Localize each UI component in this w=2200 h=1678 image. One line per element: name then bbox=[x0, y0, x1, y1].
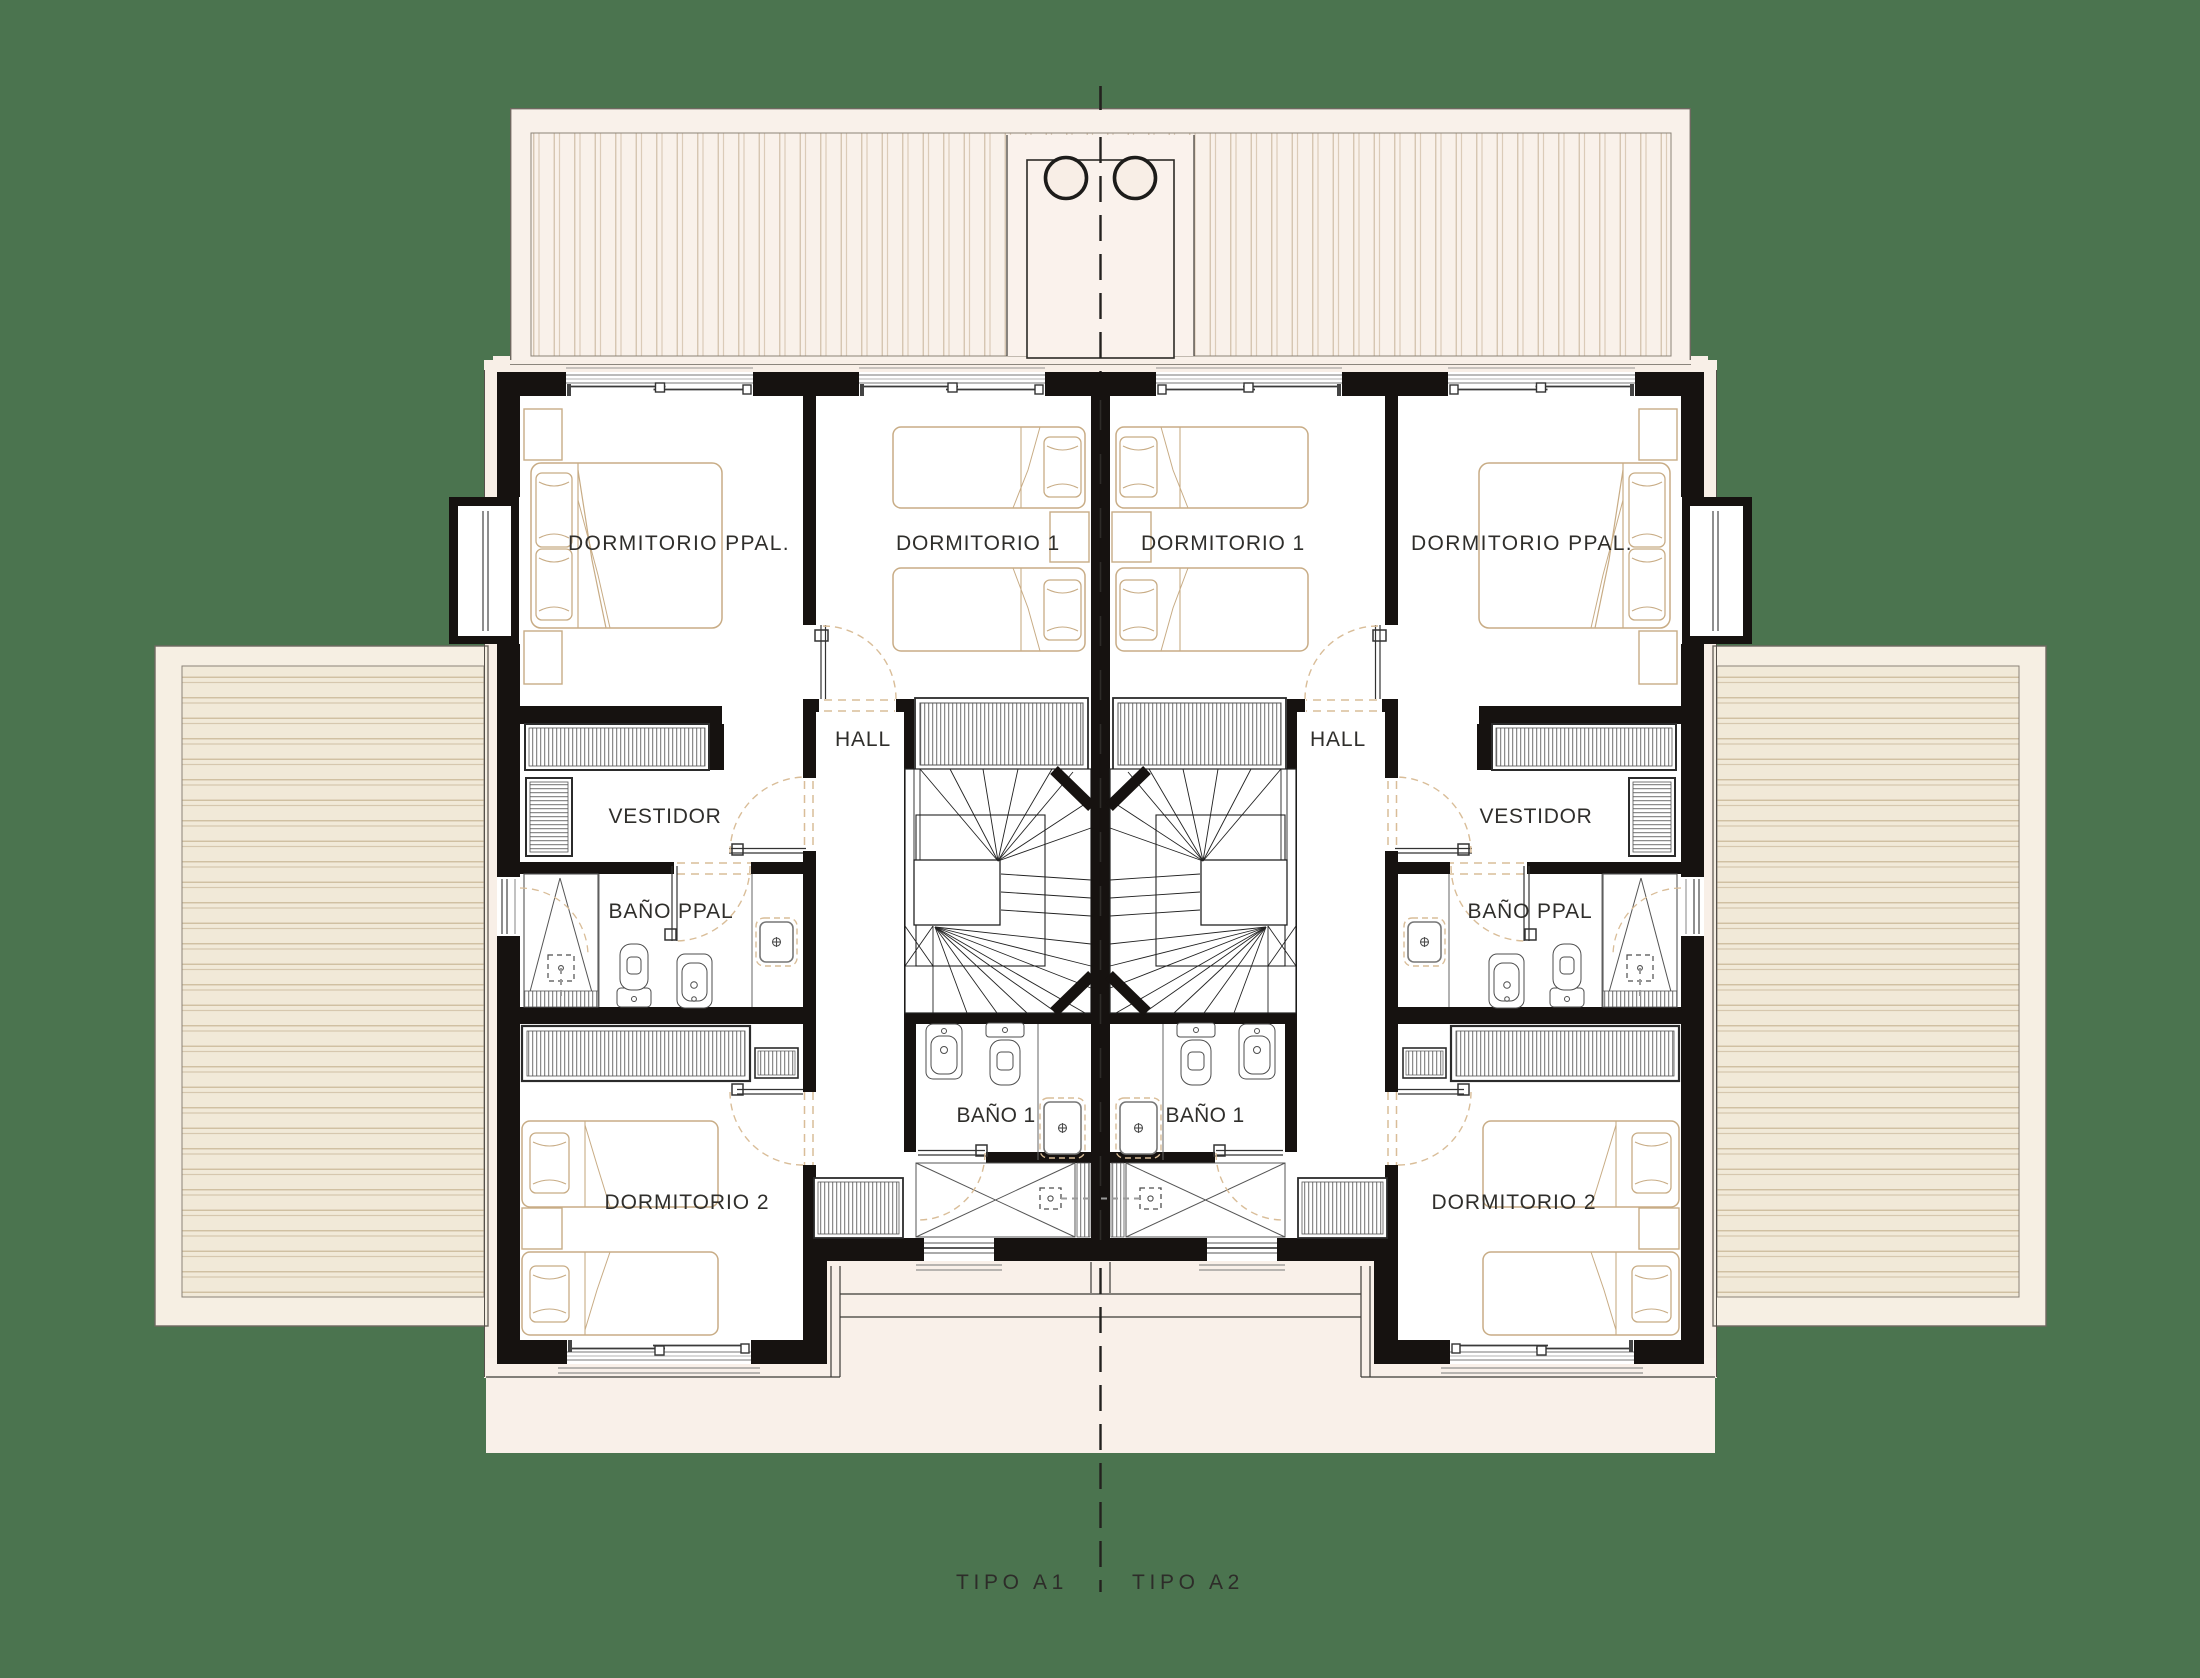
svg-text:VESTIDOR: VESTIDOR bbox=[608, 805, 721, 828]
svg-text:BAÑO PPAL: BAÑO PPAL bbox=[608, 899, 733, 923]
svg-text:DORMITORIO 1: DORMITORIO 1 bbox=[1141, 532, 1305, 555]
svg-text:BAÑO 1: BAÑO 1 bbox=[956, 1103, 1035, 1127]
svg-text:VESTIDOR: VESTIDOR bbox=[1479, 805, 1592, 828]
svg-text:TIPO A2: TIPO A2 bbox=[1132, 1571, 1244, 1594]
svg-text:DORMITORIO PPAL.: DORMITORIO PPAL. bbox=[1411, 532, 1633, 555]
svg-text:HALL: HALL bbox=[835, 728, 891, 751]
svg-text:DORMITORIO 2: DORMITORIO 2 bbox=[604, 1191, 769, 1214]
svg-text:BAÑO PPAL: BAÑO PPAL bbox=[1467, 899, 1592, 923]
svg-text:DORMITORIO 1: DORMITORIO 1 bbox=[896, 532, 1060, 555]
svg-text:TIPO A1: TIPO A1 bbox=[956, 1571, 1068, 1594]
svg-text:DORMITORIO 2: DORMITORIO 2 bbox=[1431, 1191, 1596, 1214]
svg-text:DORMITORIO PPAL.: DORMITORIO PPAL. bbox=[568, 532, 790, 555]
svg-text:BAÑO 1: BAÑO 1 bbox=[1165, 1103, 1244, 1127]
svg-text:HALL: HALL bbox=[1310, 728, 1366, 751]
